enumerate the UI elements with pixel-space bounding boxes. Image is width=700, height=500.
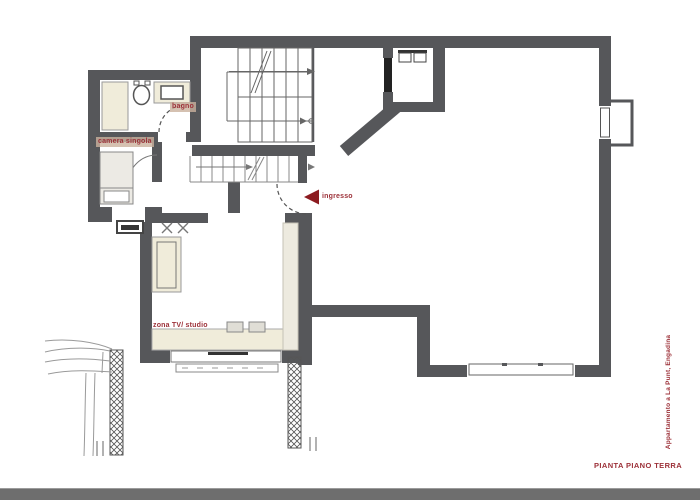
toilet (134, 86, 150, 105)
shower (102, 82, 128, 130)
elevator-vent-1 (399, 53, 411, 62)
stair-arrowhead-lower (246, 164, 253, 170)
terrain-sketch-lines (45, 340, 112, 456)
window-south-mullion-1 (502, 363, 507, 366)
wall-zonatv-left (140, 213, 152, 363)
window-right-box (611, 101, 632, 145)
wardrobe-band (283, 223, 298, 350)
wall-bagno-stairhall (190, 36, 201, 142)
hatched-wall-right (288, 357, 301, 448)
elevator-door-leaf (384, 58, 392, 92)
spotlight-x-mark (178, 223, 188, 233)
wall-corridor-stub (228, 182, 240, 213)
elevator-vent-2 (414, 53, 426, 62)
wall-entry-stub (298, 152, 307, 183)
bed-pillow (104, 191, 129, 202)
window-camera-sill-bar (121, 225, 139, 230)
wall-top (197, 36, 611, 48)
staircase (190, 48, 315, 182)
room-label-camera-singola: camera singola (96, 137, 154, 147)
sink-basin (161, 86, 183, 99)
wall-diagonal (344, 107, 396, 151)
drawing-title: PIANTA PIANO TERRA (594, 461, 678, 470)
ingresso-arrow-icon (304, 190, 319, 205)
elevator-wall-left-bottom (383, 92, 393, 112)
toilet-knob (134, 81, 139, 85)
elevator-wall-left-top (383, 48, 393, 58)
window-south-frame (469, 364, 573, 375)
stair-arrowhead-entry (308, 164, 315, 171)
hatched-wall-left (110, 350, 123, 455)
wall-under-stairs (192, 145, 315, 156)
window-south-mullion-2 (538, 363, 543, 366)
spotlight-x-mark (162, 223, 172, 233)
sofa (152, 237, 181, 292)
wall-zonatv-right (298, 213, 312, 365)
elevator-room (383, 48, 445, 112)
project-name-vertical: Appartamento a La Punt, Engadina (665, 327, 675, 457)
floor-plan-page: bagno camera singola ingresso zona TV/ s… (0, 0, 700, 500)
stair-arrowhead-mid (300, 118, 307, 125)
window-zonatv-bar (208, 352, 248, 355)
toilet-knob (145, 81, 150, 85)
room-label-zona-tv: zona TV/ studio (153, 322, 208, 330)
wall-right (599, 36, 611, 377)
stair-outline (238, 48, 312, 142)
wall-camera-right (152, 142, 162, 182)
wall-step-horizontal (312, 305, 430, 317)
chair (227, 322, 243, 332)
door-arc-entry (277, 184, 307, 214)
floor-plan-drawing (0, 0, 700, 500)
room-label-ingresso: ingresso (322, 193, 353, 201)
chair (249, 322, 265, 332)
room-label-bagno: bagno (170, 102, 196, 112)
footer-bar (0, 488, 700, 500)
wall-bagno-top (88, 70, 197, 80)
window-right-leaf (601, 108, 610, 137)
window-camera-gap (112, 207, 145, 222)
